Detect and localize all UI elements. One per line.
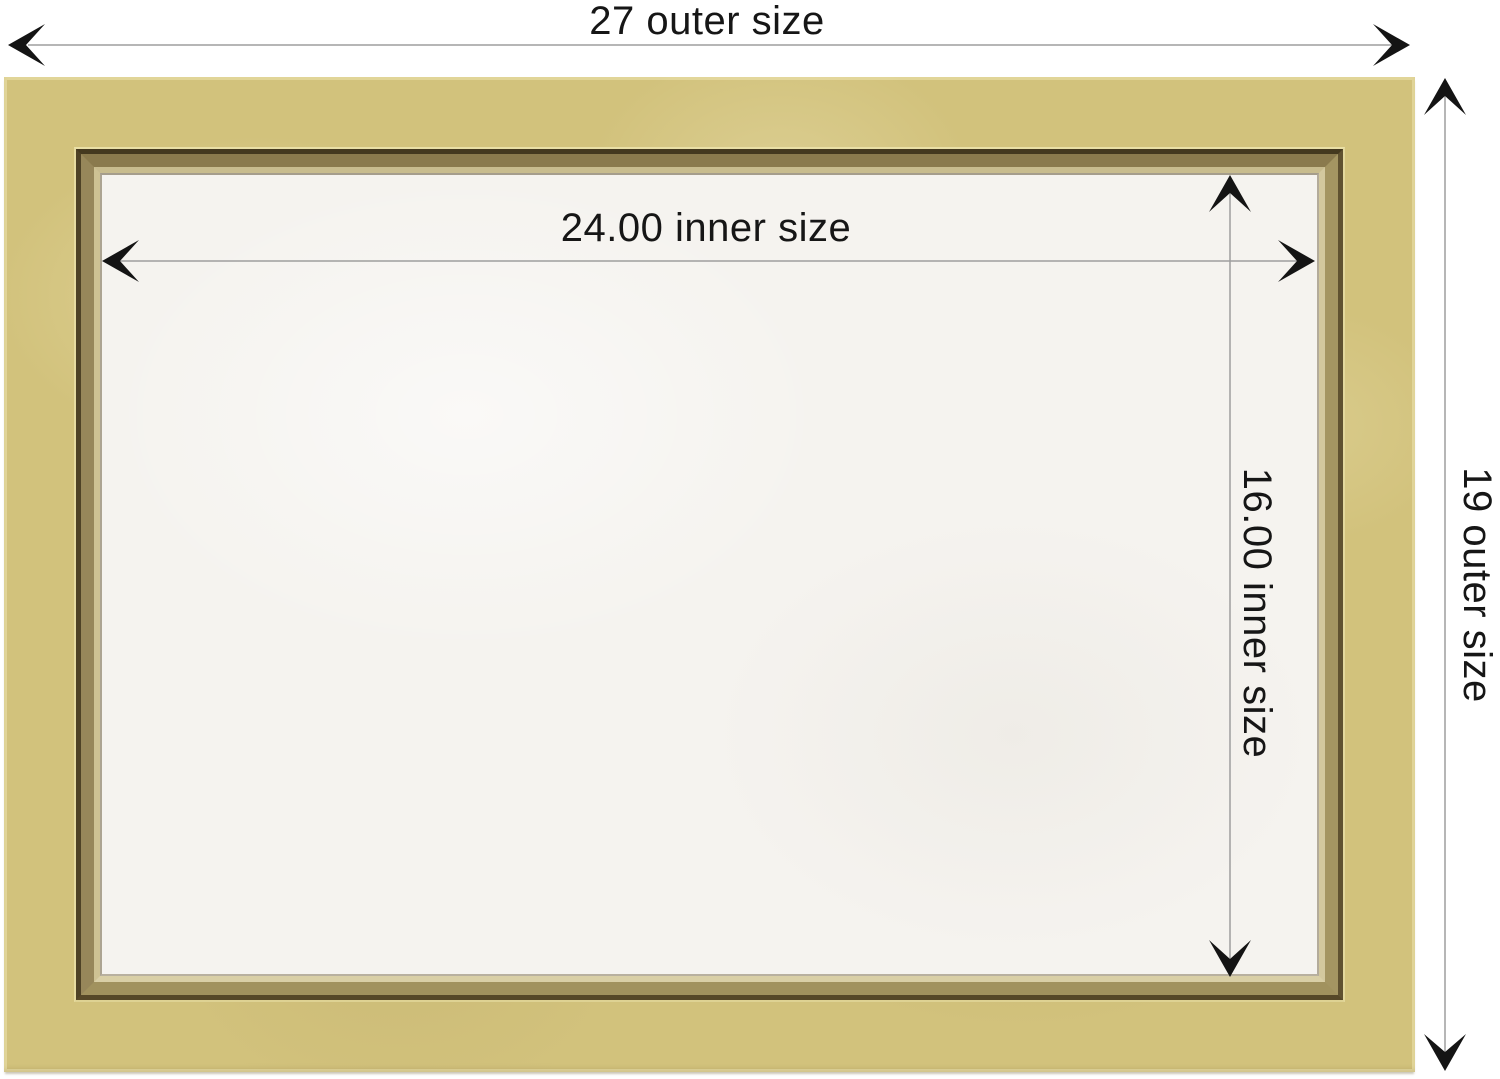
- outer-width-label: 27 outer size: [589, 0, 825, 42]
- frame-dimension-diagram: 27 outer size 24.00 inner size 16.00 inn…: [0, 0, 1500, 1079]
- inner-width-label: 24.00 inner size: [561, 207, 851, 249]
- inner-height-label: 16.00 inner size: [1236, 468, 1278, 758]
- outer-height-label: 19 outer size: [1456, 467, 1498, 703]
